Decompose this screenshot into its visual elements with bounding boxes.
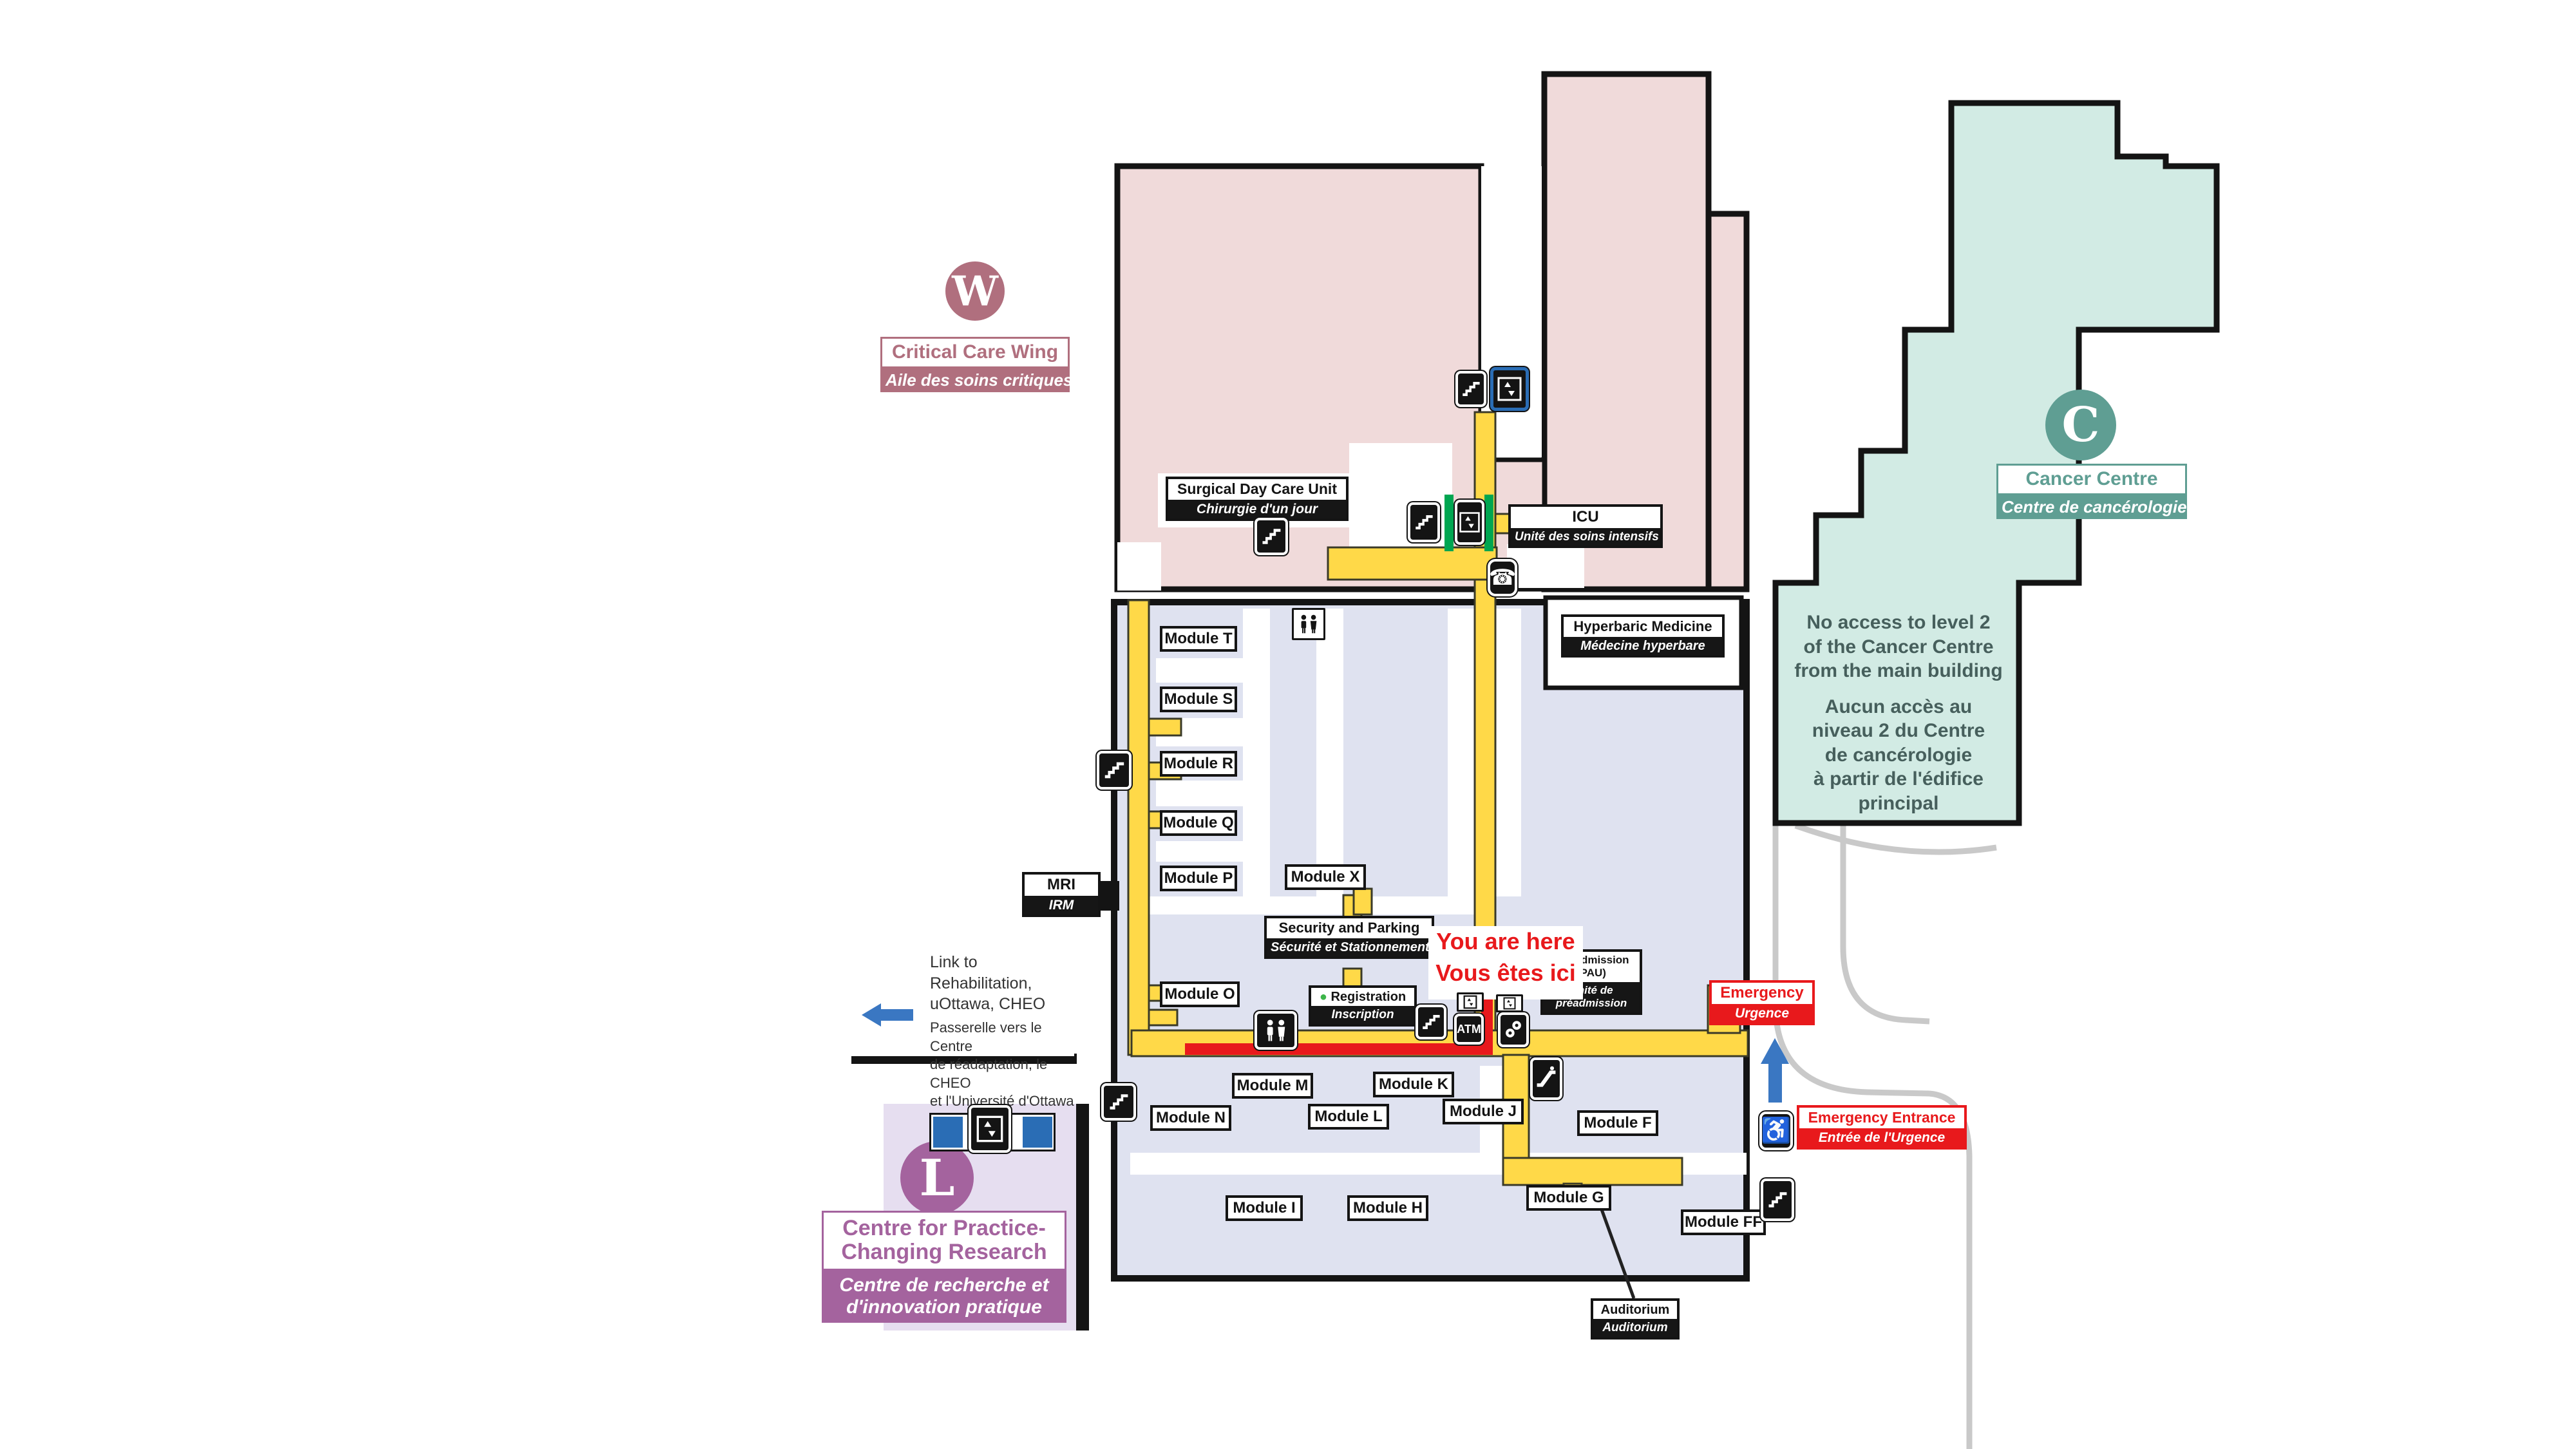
wing-c-letter: C <box>2062 397 2100 453</box>
module-p-text: Module P <box>1164 869 1233 887</box>
emergency-entrance-fr: Entrée de l'Urgence <box>1799 1128 1964 1148</box>
wing-l-name-en: Centre for Practice- Changing Research <box>822 1211 1066 1271</box>
no-access-fr-1: Aucun accès au <box>1783 695 2014 719</box>
wing-l-name-en-2: Changing Research <box>841 1240 1046 1264</box>
module-m-text: Module M <box>1237 1077 1309 1095</box>
elevator-icon <box>1490 367 1529 411</box>
you-are-here-fr: Vous êtes ici <box>1428 958 1583 989</box>
module-r-text: Module R <box>1164 755 1233 773</box>
auditorium-fr: Auditorium <box>1593 1319 1677 1336</box>
wing-w-label: Critical Care Wing Aile des soins critiq… <box>880 337 1070 392</box>
link-left-arrow-icon <box>862 1003 881 1027</box>
module-h-text: Module H <box>1353 1199 1423 1217</box>
stairs-icon <box>1761 1179 1794 1221</box>
security-parking-label: Security and Parking Sécurité et Station… <box>1264 916 1434 959</box>
module-m-label: Module M <box>1232 1073 1313 1099</box>
no-access-fr-5: principal <box>1783 791 2014 816</box>
module-o-text: Module O <box>1164 985 1235 1003</box>
keys-icon <box>1498 1012 1529 1047</box>
module-o-label: Module O <box>1160 981 1240 1007</box>
wheelchair-icon: ♿ <box>1759 1112 1793 1150</box>
link-note-en-1: Link to <box>930 952 1045 973</box>
floor-plan-shapes <box>0 0 2576 1449</box>
wing-w-badge: W <box>945 261 1005 321</box>
hyperbaric-label: Hyperbaric Medicine Médecine hyperbare <box>1561 614 1725 658</box>
security-fr: Sécurité et Stationnement <box>1267 938 1432 956</box>
icu-label: ICU Unité des soins intensifs <box>1508 504 1663 548</box>
module-q-text: Module Q <box>1163 814 1233 832</box>
link-note-en: Link to Rehabilitation, uOttawa, CHEO <box>930 952 1045 1015</box>
wing-l-label: Centre for Practice- Changing Research C… <box>822 1211 1066 1323</box>
you-are-here-en: You are here <box>1428 926 1583 958</box>
surgical-en: Surgical Day Care Unit <box>1168 479 1346 500</box>
emergency-entrance-en: Emergency Entrance <box>1799 1108 1964 1128</box>
escalator-icon <box>1530 1057 1562 1100</box>
elevator-icon-small <box>1496 994 1523 1012</box>
mri-fr: IRM <box>1025 896 1098 915</box>
module-l-text: Module L <box>1314 1108 1382 1126</box>
washroom-icon <box>1292 608 1325 640</box>
link-note-box: Link to Rehabilitation, uOttawa, CHEO Pa… <box>851 934 1074 1056</box>
elevator-icon <box>969 1105 1011 1153</box>
emergency-label: Emergency Urgence <box>1709 980 1815 1025</box>
registration-label: ● Registration Inscription <box>1309 985 1417 1027</box>
module-n-text: Module N <box>1156 1109 1226 1127</box>
link-bar-blue-right <box>1023 1117 1052 1148</box>
surgical-day-care-label: Surgical Day Care Unit Chirurgie d'un jo… <box>1166 477 1349 521</box>
no-access-en-2: of the Cancer Centre <box>1783 635 2014 659</box>
elevator-icon-small <box>1457 992 1484 1012</box>
no-access-fr-4: à partir de l'édifice <box>1783 767 2014 791</box>
module-h-label: Module H <box>1347 1195 1428 1221</box>
washroom-icon <box>1255 1011 1297 1050</box>
no-access-en-3: from the main building <box>1783 659 2014 683</box>
stairs-icon <box>1101 1083 1136 1121</box>
elevator-icon <box>1455 500 1484 545</box>
wing-w-name-en: Critical Care Wing <box>880 337 1070 368</box>
module-x-label: Module X <box>1285 864 1366 890</box>
link-note-fr-2: de réadaptation, le CHEO <box>930 1056 1074 1092</box>
module-f-text: Module F <box>1584 1114 1651 1132</box>
module-p-label: Module P <box>1160 866 1237 891</box>
module-f-label: Module F <box>1577 1110 1658 1136</box>
module-j-label: Module J <box>1443 1099 1524 1124</box>
no-access-note: No access to level 2 of the Cancer Centr… <box>1783 611 2014 815</box>
link-note-en-3: uOttawa, CHEO <box>930 994 1045 1015</box>
module-t-label: Module T <box>1160 626 1237 652</box>
auditorium-label: Auditorium Auditorium <box>1591 1298 1680 1340</box>
module-i-label: Module I <box>1226 1195 1303 1221</box>
module-ff-label: Module FF <box>1681 1209 1766 1235</box>
you-are-here-box: You are here Vous êtes ici <box>1428 926 1583 999</box>
no-access-en-1: No access to level 2 <box>1783 611 2014 635</box>
wing-c-name-en: Cancer Centre <box>1996 464 2187 495</box>
module-ff-text: Module FF <box>1685 1213 1762 1231</box>
module-s-label: Module S <box>1160 687 1237 712</box>
no-access-fr-3: de cancérologie <box>1783 743 2014 768</box>
mri-en: MRI <box>1025 875 1098 896</box>
wing-c-name-fr: Centre de cancérologie <box>1996 495 2187 520</box>
module-s-text: Module S <box>1164 690 1233 708</box>
module-k-label: Module K <box>1373 1072 1454 1097</box>
registration-dot: ● <box>1320 990 1327 1004</box>
module-k-text: Module K <box>1379 1075 1448 1094</box>
phone-icon: ☎ <box>1488 559 1517 596</box>
stairs-icon <box>1416 1005 1446 1039</box>
module-i-text: Module I <box>1233 1199 1295 1217</box>
link-note-fr: Passerelle vers le Centre de réadaptatio… <box>930 1019 1074 1111</box>
emergency-en: Emergency <box>1712 983 1812 1004</box>
hyperbaric-fr: Médecine hyperbare <box>1564 637 1722 655</box>
icu-en: ICU <box>1511 507 1660 528</box>
atm-text: ATM <box>1457 1023 1481 1036</box>
module-j-text: Module J <box>1450 1103 1517 1121</box>
module-g-label: Module G <box>1526 1185 1611 1211</box>
stairs-icon <box>1408 502 1440 542</box>
wing-l-letter: L <box>920 1149 955 1207</box>
surgical-fr: Chirurgie d'un jour <box>1168 500 1346 519</box>
registration-en-text: Registration <box>1331 990 1406 1004</box>
no-access-fr-2: niveau 2 du Centre <box>1783 719 2014 743</box>
wing-l-badge: L <box>900 1141 974 1215</box>
mri-label: MRI IRM <box>1022 872 1101 917</box>
wing-w-letter: W <box>952 267 998 316</box>
registration-en: ● Registration <box>1311 988 1414 1006</box>
hyperbaric-en: Hyperbaric Medicine <box>1564 617 1722 637</box>
link-bar-blue-left <box>933 1117 963 1148</box>
entrance-up-arrow-icon <box>1761 1038 1789 1064</box>
wing-l-name-fr-1: Centre de recherche et <box>839 1274 1048 1296</box>
auditorium-en: Auditorium <box>1593 1301 1677 1319</box>
security-en: Security and Parking <box>1267 918 1432 938</box>
wing-c-badge: C <box>2045 390 2116 460</box>
module-g-text: Module G <box>1533 1189 1604 1207</box>
module-q-label: Module Q <box>1160 810 1237 836</box>
stairs-icon <box>1097 751 1132 790</box>
atm-icon: ATM <box>1454 1014 1484 1045</box>
link-note-en-2: Rehabilitation, <box>930 973 1045 994</box>
module-t-text: Module T <box>1164 630 1232 648</box>
wing-w-name-fr: Aile des soins critiques <box>880 368 1070 393</box>
module-l-label: Module L <box>1308 1104 1389 1130</box>
stairs-icon <box>1455 371 1486 407</box>
wing-l-name-fr-2: d'innovation pratique <box>846 1296 1042 1318</box>
emergency-entrance-label: Emergency Entrance Entrée de l'Urgence <box>1797 1105 1967 1150</box>
entrance-up-arrow-shaft <box>1768 1063 1782 1103</box>
emergency-fr: Urgence <box>1712 1004 1812 1023</box>
link-note-fr-1: Passerelle vers le Centre <box>930 1019 1074 1056</box>
registration-fr: Inscription <box>1311 1006 1414 1023</box>
icu-fr: Unité des soins intensifs <box>1511 528 1660 545</box>
stairs-icon <box>1255 518 1288 555</box>
spacer <box>1783 683 2014 695</box>
module-r-label: Module R <box>1160 751 1237 777</box>
link-left-arrow-shaft <box>880 1009 913 1021</box>
module-x-text: Module X <box>1291 868 1360 886</box>
wing-l-name-en-1: Centre for Practice- <box>842 1216 1046 1240</box>
wall <box>1076 1104 1089 1331</box>
wing-c-label: Cancer Centre Centre de cancérologie <box>1996 464 2187 519</box>
hospital-floor-plan: W Critical Care Wing Aile des soins crit… <box>0 0 2576 1449</box>
module-n-label: Module N <box>1150 1105 1231 1131</box>
wing-l-name-fr: Centre de recherche et d'innovation prat… <box>822 1271 1066 1323</box>
